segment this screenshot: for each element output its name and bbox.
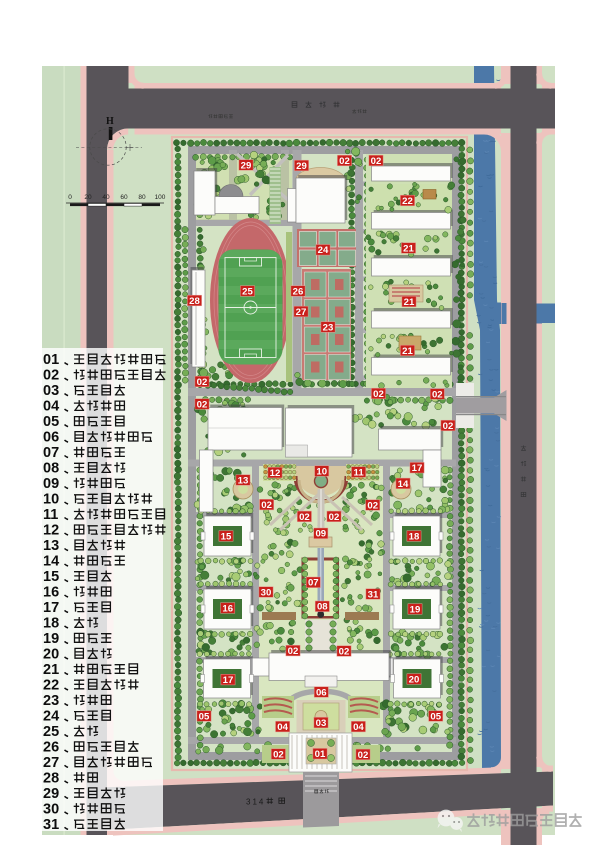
svg-text:14: 14 <box>398 479 409 490</box>
svg-text:31: 31 <box>43 817 59 833</box>
svg-text:03: 03 <box>43 383 59 399</box>
svg-text:10: 10 <box>316 466 327 477</box>
svg-text:30: 30 <box>43 801 59 817</box>
svg-text:02: 02 <box>358 750 369 761</box>
svg-text:26: 26 <box>43 740 59 756</box>
svg-text:19: 19 <box>43 631 59 647</box>
svg-text:60: 60 <box>120 194 128 201</box>
svg-text:11: 11 <box>43 507 58 523</box>
svg-text:17: 17 <box>43 600 59 616</box>
svg-text:02: 02 <box>197 399 208 410</box>
svg-text:04: 04 <box>43 399 59 415</box>
svg-text:22: 22 <box>402 196 413 207</box>
svg-text:02: 02 <box>261 500 272 511</box>
svg-text:14: 14 <box>43 554 59 570</box>
svg-text:40: 40 <box>102 194 110 201</box>
svg-text:15: 15 <box>43 569 59 585</box>
svg-text:20: 20 <box>84 194 92 201</box>
svg-text:27: 27 <box>43 755 59 771</box>
svg-text:02: 02 <box>288 646 299 657</box>
svg-text:29: 29 <box>296 161 307 172</box>
svg-text:25: 25 <box>43 724 59 740</box>
svg-text:02: 02 <box>339 646 350 657</box>
svg-text:21: 21 <box>402 346 413 357</box>
svg-text:02: 02 <box>43 368 59 384</box>
svg-text:08: 08 <box>43 461 59 477</box>
svg-text:02: 02 <box>367 500 378 511</box>
svg-text:04: 04 <box>353 722 364 733</box>
svg-text:17: 17 <box>412 463 423 474</box>
svg-text:13: 13 <box>238 475 249 486</box>
svg-text:29: 29 <box>241 160 252 171</box>
svg-text:01: 01 <box>43 352 59 368</box>
svg-text:02: 02 <box>329 512 340 523</box>
svg-text:H: H <box>106 116 114 127</box>
svg-text:11: 11 <box>354 467 365 478</box>
svg-text:03: 03 <box>316 718 327 729</box>
svg-text:0: 0 <box>68 194 72 201</box>
svg-text:13: 13 <box>43 538 59 554</box>
svg-text:18: 18 <box>43 616 59 632</box>
svg-text:02: 02 <box>299 512 310 523</box>
svg-text:20: 20 <box>409 674 420 685</box>
svg-text:100: 100 <box>155 194 166 201</box>
svg-text:09: 09 <box>315 529 326 540</box>
svg-text:02: 02 <box>373 389 384 400</box>
svg-text:02: 02 <box>197 377 208 388</box>
svg-text:01: 01 <box>315 749 326 760</box>
svg-text:23: 23 <box>323 322 334 333</box>
svg-text:28: 28 <box>43 770 59 786</box>
svg-text:02: 02 <box>443 421 454 432</box>
svg-text:07: 07 <box>43 445 59 461</box>
svg-text:02: 02 <box>371 156 382 167</box>
svg-text:314: 314 <box>246 798 265 807</box>
svg-text:04: 04 <box>277 722 288 733</box>
svg-text:02: 02 <box>339 156 350 167</box>
svg-text:09: 09 <box>43 476 59 492</box>
svg-text:30: 30 <box>261 587 272 598</box>
svg-text:07: 07 <box>308 578 319 589</box>
svg-text:05: 05 <box>199 711 210 722</box>
svg-text:12: 12 <box>270 468 281 479</box>
svg-text:24: 24 <box>318 245 329 256</box>
svg-text:23: 23 <box>43 693 59 709</box>
svg-text:16: 16 <box>43 585 59 601</box>
svg-text:21: 21 <box>403 243 414 254</box>
svg-text:27: 27 <box>296 307 307 318</box>
svg-text:10: 10 <box>43 492 59 508</box>
svg-text:18: 18 <box>409 531 420 542</box>
svg-text:31: 31 <box>368 589 379 600</box>
svg-text:29: 29 <box>43 786 59 802</box>
svg-text:24: 24 <box>43 709 59 725</box>
svg-text:06: 06 <box>316 687 327 698</box>
svg-text:08: 08 <box>317 602 328 613</box>
svg-text:15: 15 <box>221 531 232 542</box>
svg-text:06: 06 <box>43 430 59 446</box>
svg-text:21: 21 <box>404 297 415 308</box>
svg-text:17: 17 <box>223 675 234 686</box>
svg-text:05: 05 <box>430 711 441 722</box>
svg-text:26: 26 <box>293 286 304 297</box>
svg-text:22: 22 <box>43 678 59 694</box>
svg-text:80: 80 <box>138 194 146 201</box>
svg-text:19: 19 <box>410 604 421 615</box>
svg-text:02: 02 <box>432 389 443 400</box>
svg-text:05: 05 <box>43 414 59 430</box>
svg-text:21: 21 <box>43 662 59 678</box>
svg-text:16: 16 <box>222 603 233 614</box>
svg-text:20: 20 <box>43 647 59 663</box>
svg-text:25: 25 <box>242 286 253 297</box>
svg-text:02: 02 <box>273 749 284 760</box>
svg-text:12: 12 <box>43 523 59 539</box>
svg-text:28: 28 <box>189 296 200 307</box>
